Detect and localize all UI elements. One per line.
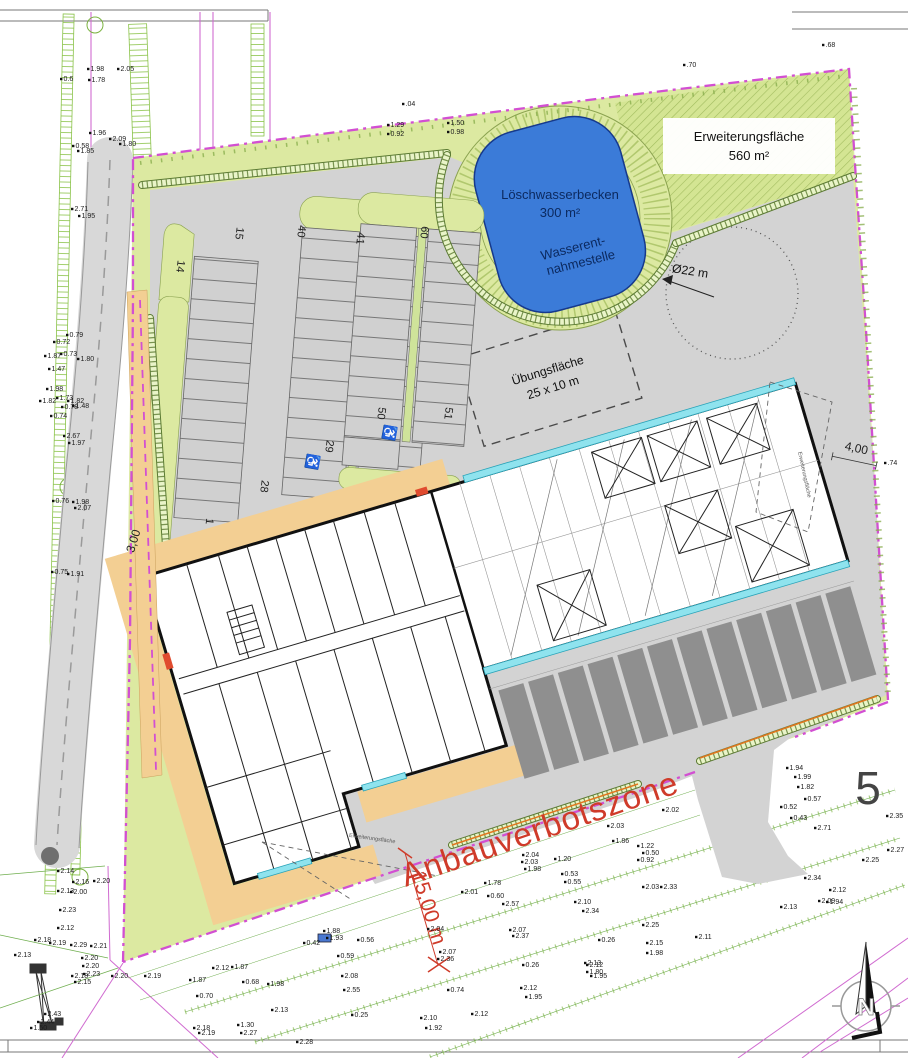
survey-point-marker <box>267 983 269 985</box>
survey-point-marker <box>521 861 523 863</box>
survey-point-marker <box>71 975 73 977</box>
survey-point-marker <box>237 1024 239 1026</box>
survey-point-value: 2.13 <box>275 1007 289 1014</box>
survey-point-marker <box>487 895 489 897</box>
survey-point-marker <box>646 952 648 954</box>
stall-number: 50 <box>374 407 387 421</box>
survey-point-marker <box>447 989 449 991</box>
survey-point-value: 1.82 <box>43 398 57 405</box>
survey-point-value: 0.74 <box>451 987 465 994</box>
survey-point-marker <box>662 809 664 811</box>
survey-point-marker <box>117 68 119 70</box>
survey-point-value: 0.57 <box>808 796 822 803</box>
survey-point-value: 2.20 <box>97 878 111 885</box>
survey-point-marker <box>44 355 46 357</box>
survey-point-value: 2.35 <box>890 813 904 820</box>
survey-point-value: 0.6 <box>64 76 74 83</box>
survey-point-marker <box>509 929 511 931</box>
survey-point-marker <box>420 1017 422 1019</box>
survey-point-marker <box>52 500 54 502</box>
survey-point-marker <box>790 817 792 819</box>
survey-point-marker <box>561 873 563 875</box>
survey-point-marker <box>337 955 339 957</box>
survey-point-value: 2.71 <box>75 206 89 213</box>
survey-point-marker <box>67 573 69 575</box>
survey-point-value: 2.34 <box>808 875 822 882</box>
survey-point-value: 1.98 <box>50 386 64 393</box>
survey-point-value: 1.48 <box>76 403 90 410</box>
survey-point-marker <box>196 995 198 997</box>
survey-point-marker <box>326 937 328 939</box>
survey-point-value: .68 <box>826 42 836 49</box>
survey-point-marker <box>81 957 83 959</box>
survey-point-value: 2.11 <box>699 934 712 941</box>
survey-point-marker <box>522 964 524 966</box>
survey-point-value: 1.78 <box>488 880 502 887</box>
survey-point-value: 0.56 <box>361 937 375 944</box>
survey-point-value: 2.20 <box>85 955 99 962</box>
survey-point-value: 0.59 <box>341 953 355 960</box>
survey-point-marker <box>387 124 389 126</box>
survey-point-value: 1.22 <box>641 843 655 850</box>
survey-point-marker <box>574 901 576 903</box>
survey-point-value: 0.79 <box>70 332 84 339</box>
survey-point-marker <box>51 571 53 573</box>
survey-point-marker <box>522 854 524 856</box>
survey-point-marker <box>82 965 84 967</box>
survey-point-value: 2.03 <box>525 859 539 866</box>
stall-number: 40 <box>294 225 307 239</box>
survey-point-marker <box>660 886 662 888</box>
survey-point-value: 2.55 <box>347 987 361 994</box>
survey-point-value: .74 <box>888 460 898 467</box>
survey-point-value: 0.42 <box>307 940 321 947</box>
survey-point-value: 0.25 <box>355 1012 369 1019</box>
survey-point-marker <box>14 954 16 956</box>
survey-point-marker <box>554 858 556 860</box>
survey-point-marker <box>461 891 463 893</box>
survey-point-value: 2.71 <box>818 825 832 832</box>
stall-number: 28 <box>257 480 270 494</box>
survey-point-value: 2.12 <box>524 985 538 992</box>
survey-point-value: 1.47 <box>52 366 66 373</box>
survey-point-value: 2.01 <box>465 889 479 896</box>
parcel-number: 5 <box>855 762 881 814</box>
survey-point-value: 0.74 <box>54 413 68 420</box>
survey-point-marker <box>829 889 831 891</box>
survey-point-marker <box>582 910 584 912</box>
survey-point-value: 2.19 <box>202 1030 216 1037</box>
survey-point-marker <box>49 942 51 944</box>
survey-point-marker <box>44 1013 46 1015</box>
survey-point-value: 0.55 <box>568 879 582 886</box>
survey-point-marker <box>683 64 685 66</box>
survey-point-marker <box>351 1014 353 1016</box>
survey-point-marker <box>63 435 65 437</box>
survey-point-marker <box>447 122 449 124</box>
survey-point-marker <box>598 939 600 941</box>
survey-point-marker <box>437 958 439 960</box>
street-end-marker <box>41 847 59 865</box>
survey-point-value: 2.28 <box>300 1039 314 1046</box>
accessible-parking-icon: ♿ <box>381 424 399 443</box>
survey-point-marker <box>78 215 80 217</box>
survey-point-marker <box>89 132 91 134</box>
survey-point-marker <box>637 859 639 861</box>
survey-point-value: 2.23 <box>63 907 77 914</box>
survey-point-marker <box>822 44 824 46</box>
survey-point-marker <box>50 415 52 417</box>
survey-point-marker <box>111 975 113 977</box>
basin-label: Löschwasserbecken <box>501 187 619 202</box>
survey-point-marker <box>564 881 566 883</box>
survey-point-marker <box>804 798 806 800</box>
survey-point-value: 1.29 <box>391 122 405 129</box>
survey-point-marker <box>72 881 74 883</box>
survey-point-marker <box>357 939 359 941</box>
west-street <box>36 160 133 865</box>
survey-point-marker <box>71 208 73 210</box>
survey-point-value: 1.30 <box>241 1022 255 1029</box>
survey-point-value: 1.50 <box>34 1025 48 1032</box>
survey-point-marker <box>862 859 864 861</box>
survey-point-value: 2.04 <box>526 852 540 859</box>
survey-point-marker <box>303 942 305 944</box>
survey-point-marker <box>642 852 644 854</box>
survey-point-value: 2.02 <box>666 807 680 814</box>
survey-point-value: 2.12 <box>475 1011 489 1018</box>
survey-point-value: 1.80 <box>81 356 95 363</box>
survey-point-value: 1.92 <box>429 1025 443 1032</box>
survey-point-value: 2.10 <box>424 1015 438 1022</box>
survey-point-value: 1.82 <box>801 784 815 791</box>
survey-point-marker <box>57 927 59 929</box>
survey-point-marker <box>57 870 59 872</box>
survey-point-marker <box>59 909 61 911</box>
survey-point-marker <box>818 900 820 902</box>
survey-point-marker <box>786 767 788 769</box>
survey-point-marker <box>189 979 191 981</box>
survey-point-marker <box>502 903 504 905</box>
survey-point-value: 2.12 <box>833 887 847 894</box>
survey-point-value: 1.94 <box>830 899 844 906</box>
survey-point-value: 2.23 <box>87 971 101 978</box>
survey-point-value: 2.10 <box>578 899 592 906</box>
survey-point-value: 0.26 <box>602 937 616 944</box>
survey-point-marker <box>780 906 782 908</box>
survey-point-marker <box>74 507 76 509</box>
survey-point-marker <box>72 405 74 407</box>
survey-point-value: 2.05 <box>121 66 135 73</box>
survey-point-value: 1.91 <box>71 571 85 578</box>
survey-point-value: 1.88 <box>327 928 341 935</box>
survey-point-marker <box>212 967 214 969</box>
survey-point-marker <box>144 975 146 977</box>
expansion-label-size: 560 m² <box>729 148 770 163</box>
survey-point-marker <box>387 133 389 135</box>
survey-point-marker <box>56 397 58 399</box>
survey-point-value: 2.21 <box>94 943 108 950</box>
survey-point-value: 1.20 <box>558 856 572 863</box>
survey-point-value: 2.67 <box>67 433 81 440</box>
survey-point-marker <box>240 1032 242 1034</box>
survey-point-marker <box>642 886 644 888</box>
survey-point-value: 2.07 <box>443 949 457 956</box>
stall-number: 41 <box>353 232 366 246</box>
basin-size: 300 m² <box>540 205 581 220</box>
survey-point-marker <box>87 68 89 70</box>
survey-point-value: 2.00 <box>74 889 88 896</box>
survey-point-value: 0.26 <box>526 962 540 969</box>
survey-point-value: 1.86 <box>616 838 630 845</box>
survey-point-value: 0.52 <box>784 804 798 811</box>
survey-point-value: 1.78 <box>92 77 106 84</box>
survey-point-marker <box>119 143 121 145</box>
survey-point-value: 1.98 <box>650 950 664 957</box>
survey-point-value: 1.95 <box>529 994 543 1001</box>
survey-point-marker <box>427 928 429 930</box>
survey-point-value: 2.16 <box>76 879 90 886</box>
survey-point-marker <box>695 936 697 938</box>
survey-point-value: 2.29 <box>74 942 88 949</box>
survey-point-marker <box>198 1032 200 1034</box>
survey-point-marker <box>46 388 48 390</box>
survey-point-marker <box>887 849 889 851</box>
survey-point-marker <box>780 806 782 808</box>
survey-point-marker <box>607 825 609 827</box>
survey-point-marker <box>343 989 345 991</box>
survey-point-value: 2.04 <box>431 926 445 933</box>
survey-point-value: 0.43 <box>794 815 808 822</box>
survey-point-value: .70 <box>687 62 697 69</box>
survey-point-value: 2.08 <box>345 973 359 980</box>
survey-point-marker <box>72 501 74 503</box>
survey-point-value: 2.13 <box>18 952 32 959</box>
survey-point-marker <box>70 891 72 893</box>
survey-point-value: 2.19 <box>148 973 162 980</box>
survey-point-value: 2.27 <box>244 1030 258 1037</box>
survey-point-value: 2.34 <box>586 908 600 915</box>
survey-point-marker <box>77 358 79 360</box>
survey-point-value: 2.25 <box>646 922 660 929</box>
survey-point-marker <box>48 368 50 370</box>
survey-point-marker <box>67 400 69 402</box>
stall-number: 51 <box>441 407 454 421</box>
survey-point-marker <box>93 880 95 882</box>
survey-point-marker <box>797 786 799 788</box>
survey-point-value: 1.97 <box>72 440 86 447</box>
survey-point-marker <box>323 930 325 932</box>
survey-point-value: 2.14 <box>61 868 75 875</box>
survey-point-value: 1.98 <box>271 981 285 988</box>
survey-point-marker <box>57 890 59 892</box>
survey-point-marker <box>68 442 70 444</box>
site-plan-sheet: Übungsfläche 25 x 10 m Ø22 m Löschwasser… <box>0 0 908 1058</box>
survey-point-marker <box>804 877 806 879</box>
survey-point-marker <box>637 845 639 847</box>
survey-point-marker <box>30 1027 32 1029</box>
survey-point-marker <box>39 400 41 402</box>
survey-point-value: 0.75 <box>55 569 69 576</box>
survey-point-value: 0.76 <box>56 498 70 505</box>
survey-point-value: 2.03 <box>646 884 660 891</box>
survey-point-value: 2.12 <box>61 925 75 932</box>
survey-point-marker <box>70 944 72 946</box>
survey-point-marker <box>83 973 85 975</box>
survey-point-value: 1.50 <box>451 120 465 127</box>
survey-point-value: 2.36 <box>441 956 455 963</box>
survey-point-value: 1.98 <box>528 866 542 873</box>
survey-point-marker <box>296 1041 298 1043</box>
survey-point-marker <box>471 1013 473 1015</box>
survey-point-value: 0.60 <box>491 893 505 900</box>
north-letter: N <box>857 994 874 1021</box>
survey-point-value: 2.37 <box>516 933 530 940</box>
survey-point-marker <box>109 138 111 140</box>
survey-point-marker <box>524 868 526 870</box>
survey-point-value: 2.15 <box>78 979 92 986</box>
survey-point-marker <box>231 966 233 968</box>
survey-point-marker <box>60 78 62 80</box>
survey-point-marker <box>439 951 441 953</box>
survey-point-marker <box>814 827 816 829</box>
survey-point-marker <box>193 1027 195 1029</box>
survey-point-marker <box>271 1009 273 1011</box>
survey-point-marker <box>884 462 886 464</box>
survey-point-value: 1.80 <box>123 141 137 148</box>
survey-point-value: 0.98 <box>451 129 465 136</box>
survey-point-value: 0.92 <box>641 857 655 864</box>
survey-point-value: 2.07 <box>78 505 92 512</box>
survey-point-value: 1.93 <box>330 935 344 942</box>
survey-point-marker <box>646 942 648 944</box>
stall-number: 29 <box>322 440 335 454</box>
survey-point-value: 2.27 <box>891 847 905 854</box>
survey-point-value: 1.87 <box>235 964 249 971</box>
survey-point-marker <box>447 131 449 133</box>
survey-point-value: 2.33 <box>664 884 678 891</box>
survey-point-value: 1.99 <box>798 774 812 781</box>
survey-point-value: 2.12 <box>590 962 604 969</box>
survey-point-value: 1.87 <box>193 977 207 984</box>
survey-point-value: 2.57 <box>506 901 520 908</box>
survey-point-marker <box>484 882 486 884</box>
survey-point-marker <box>586 971 588 973</box>
survey-point-marker <box>886 815 888 817</box>
survey-point-marker <box>642 924 644 926</box>
expansion-label-name: Erweiterungsfläche <box>694 129 805 144</box>
survey-point-value: 2.12 <box>216 965 230 972</box>
survey-point-marker <box>425 1027 427 1029</box>
survey-point-value: 1.87 <box>48 353 62 360</box>
survey-point-marker <box>794 776 796 778</box>
survey-point-marker <box>53 341 55 343</box>
survey-point-value: 2.13 <box>784 904 798 911</box>
survey-point-marker <box>826 901 828 903</box>
survey-point-value: 0.68 <box>246 979 260 986</box>
survey-point-marker <box>37 1021 39 1023</box>
survey-point-value: 0.72 <box>57 339 71 346</box>
survey-point-marker <box>66 334 68 336</box>
survey-point-marker <box>341 975 343 977</box>
survey-point-value: 2.25 <box>866 857 880 864</box>
survey-point-value: 2.03 <box>611 823 625 830</box>
survey-point-marker <box>590 975 592 977</box>
accessible-parking-icon: ♿ <box>304 453 322 472</box>
survey-point-value: .04 <box>406 101 416 108</box>
survey-point-value: 0.53 <box>565 871 579 878</box>
survey-point-marker <box>88 79 90 81</box>
site-plan-drawing: Übungsfläche 25 x 10 m Ø22 m Löschwasser… <box>0 0 908 1058</box>
survey-point-value: 0.92 <box>391 131 405 138</box>
survey-point-marker <box>61 406 63 408</box>
survey-point-marker <box>34 939 36 941</box>
survey-point-marker <box>74 981 76 983</box>
survey-point-marker <box>520 987 522 989</box>
survey-point-value: 1.95 <box>82 213 96 220</box>
survey-point-marker <box>612 840 614 842</box>
survey-point-value: 2.43 <box>48 1011 62 1018</box>
survey-point-value: 2.20 <box>115 973 129 980</box>
survey-point-value: 0.70 <box>200 993 214 1000</box>
survey-point-value: 1.95 <box>594 973 608 980</box>
survey-point-marker <box>402 103 404 105</box>
stall-number: 60 <box>417 226 430 240</box>
survey-point-marker <box>512 935 514 937</box>
survey-point-value: 1.96 <box>93 130 107 137</box>
survey-point-value: 0.73 <box>64 351 78 358</box>
survey-point-value: 2.20 <box>86 963 100 970</box>
survey-point-value: 2.19 <box>53 940 67 947</box>
survey-point-value: 1.85 <box>81 148 95 155</box>
survey-point-marker <box>586 964 588 966</box>
expansion-label: Erweiterungsfläche 560 m² <box>663 118 835 174</box>
survey-point-marker <box>72 145 74 147</box>
stall-number: 14 <box>173 260 186 274</box>
survey-point-marker <box>77 150 79 152</box>
survey-point-marker <box>525 996 527 998</box>
survey-point-marker <box>242 981 244 983</box>
survey-point-value: 1.98 <box>91 66 105 73</box>
survey-point-value: 2.15 <box>650 940 664 947</box>
survey-point-value: 0.50 <box>646 850 660 857</box>
survey-point-value: 1.94 <box>790 765 804 772</box>
survey-point-marker <box>90 945 92 947</box>
stall-number: 15 <box>232 227 245 241</box>
